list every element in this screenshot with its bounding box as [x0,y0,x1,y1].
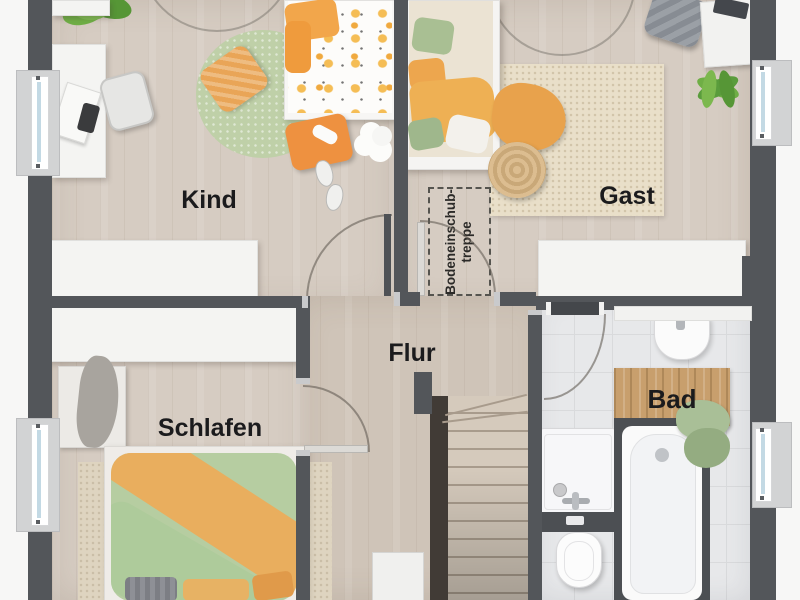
kind-room-label: Kind [149,188,269,213]
kind-bed-blanket [285,21,311,73]
flur-label: Flur [352,341,472,366]
gast-pillow-green [411,16,455,55]
schlafen-pillow-plaid [125,577,177,600]
wall-cap [296,450,310,456]
kind-bed [284,0,398,120]
floor-plan: Kind Gast Bodeneinschub- tre [0,0,800,600]
kind-flower-table [354,122,396,164]
wall-cap [296,378,310,384]
schlafen-pillow-orange2 [251,570,294,600]
kind-top-shelf [52,0,110,16]
gast-sideboard [538,240,746,298]
wall-gast-bottom [494,292,536,306]
wall-kind-gast [394,0,408,296]
kind-sideboard [48,240,258,298]
wall-right-pier [742,256,776,298]
bad-shelf [614,306,752,321]
bad-door [546,302,604,315]
toilet-flush-plate [566,516,584,525]
wall-cap [528,310,542,315]
wall-cap [302,296,308,308]
gast-pouf [488,142,546,198]
gast-bed [402,0,500,170]
wall-schlafen-right-upper [296,296,310,384]
gast-room-label: Gast [567,184,687,209]
stairwell-void [430,396,448,600]
schlafen-pillow-orange [183,579,249,600]
gast-door-leaf [417,222,425,296]
wall-stair-stub [414,372,432,414]
schlafen-wardrobe [48,302,298,362]
schlafen-bed [104,446,306,600]
schlafen-room-label: Schlafen [130,416,290,441]
flur-bottom-door [372,552,424,600]
gast-pillow-green2 [407,116,446,151]
bad-room-label: Bad [612,386,732,412]
wall-cap [494,292,500,306]
stair-treads [448,396,528,600]
wall-kind-bottom [52,296,308,308]
kind-door-leaf [384,214,391,296]
tub-faucet [655,448,669,462]
bad-toilet [556,532,602,588]
schlafen-door-leaf [304,445,368,453]
wall-schlafen-right-lower [296,450,310,600]
wall-cap [394,292,400,306]
shower-drain [553,483,567,497]
shower-faucet-handle [572,492,579,510]
plant-icon [694,64,742,114]
wall-bad-left [528,310,542,600]
